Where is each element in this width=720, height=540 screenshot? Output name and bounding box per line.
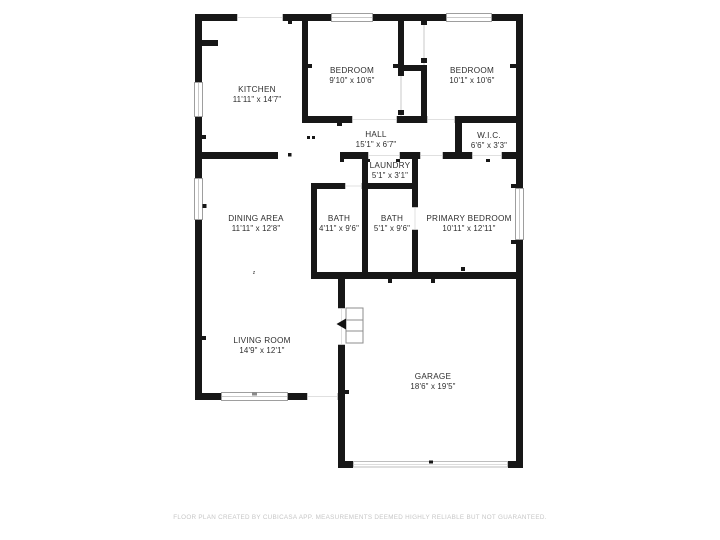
room-label: W.I.C.: [477, 131, 501, 140]
room-label: BEDROOM: [450, 66, 494, 75]
wall-bath-divider: [362, 152, 368, 279]
wall-right: [516, 14, 523, 468]
room-dims: 6'6" x 3'3": [471, 141, 507, 150]
wall-bath1-top: [311, 183, 345, 189]
dining-fixture-mark: z: [253, 270, 256, 276]
room-label: LAUNDRY: [370, 161, 411, 170]
room-label: KITCHEN: [238, 85, 276, 94]
room-dims: 10'1" x 10'6": [449, 76, 494, 85]
room-bath-1: BATH 4'11" x 9'6": [319, 214, 359, 233]
wall-dining-bath-divider: [311, 183, 317, 279]
room-dims: 4'11" x 9'6": [319, 224, 359, 233]
room-dims: 18'6" x 19'5": [410, 382, 455, 391]
floor-plan-drawing: KITCHEN 11'11" x 14'7" BEDROOM 9'10" x 1…: [0, 0, 720, 540]
wall-hall-top: [302, 116, 516, 123]
room-label: BATH: [328, 214, 350, 223]
room-dining-area: DINING AREA 11'11" x 12'8": [228, 214, 284, 233]
window-primary-right: [516, 189, 524, 240]
wall-laundry-bottom: [362, 183, 418, 189]
room-label: HALL: [365, 130, 387, 139]
room-labels: KITCHEN 11'11" x 14'7" BEDROOM 9'10" x 1…: [228, 66, 511, 391]
room-dims: 9'10" x 10'6": [329, 76, 374, 85]
room-primary-bedroom: PRIMARY BEDROOM 10'11" x 12'11": [426, 214, 511, 233]
wall-closet-right: [421, 65, 427, 122]
room-dims: 5'1" x 9'6": [374, 224, 410, 233]
room-bath-2: BATH 5'1" x 9'6": [374, 214, 410, 233]
room-wic: W.I.C. 6'6" x 3'3": [471, 131, 507, 150]
room-label: BATH: [381, 214, 403, 223]
room-dims: 5'1" x 3'1": [372, 171, 408, 180]
window-bedroom1-top: [332, 14, 373, 22]
room-hall: HALL 15'1" x 6'7": [356, 130, 397, 149]
wall-bedroom1-left: [302, 14, 308, 122]
window-living-bottom: [222, 392, 288, 401]
wall-bath-garage-top: [311, 272, 516, 279]
room-dims: 10'11" x 12'11": [442, 224, 495, 233]
wall-kitchen-dining-divider: [195, 152, 278, 159]
room-garage: GARAGE 18'6" x 19'5": [410, 372, 455, 391]
garage-door: [353, 461, 508, 469]
window-dining-left: [195, 179, 203, 220]
room-label: BEDROOM: [330, 66, 374, 75]
wall-wic-bottom-a: [443, 152, 472, 159]
room-label: LIVING ROOM: [233, 336, 290, 345]
room-dims: 11'11" x 12'8": [232, 224, 281, 233]
wall-closet-left: [398, 14, 404, 71]
room-dims: 11'11" x 14'7": [233, 95, 282, 104]
room-label: DINING AREA: [228, 214, 284, 223]
wall-garage-left: [338, 272, 345, 468]
footer-disclaimer: FLOOR PLAN CREATED BY CUBICASA APP. MEAS…: [173, 514, 547, 521]
wall-kitchen-stub: [195, 40, 218, 46]
window-kitchen-left: [195, 83, 203, 117]
room-label: GARAGE: [415, 372, 452, 381]
room-bedroom-2: BEDROOM 10'1" x 10'6": [449, 66, 494, 85]
room-dims: 14'9" x 12'1": [239, 346, 284, 355]
floor-plan-page: KITCHEN 11'11" x 14'7" BEDROOM 9'10" x 1…: [0, 0, 720, 540]
wall-wic-bottom-b: [502, 152, 516, 159]
room-dims: 15'1" x 6'7": [356, 140, 397, 149]
room-label: PRIMARY BEDROOM: [426, 214, 511, 223]
room-bedroom-1: BEDROOM 9'10" x 10'6": [329, 66, 374, 85]
room-kitchen: KITCHEN 11'11" x 14'7": [233, 85, 282, 104]
room-laundry: LAUNDRY 5'1" x 3'1": [370, 161, 411, 180]
wall-wic-left: [455, 117, 462, 153]
room-living-room: LIVING ROOM 14'9" x 12'1": [233, 336, 290, 355]
window-bedroom2-top: [447, 14, 492, 22]
